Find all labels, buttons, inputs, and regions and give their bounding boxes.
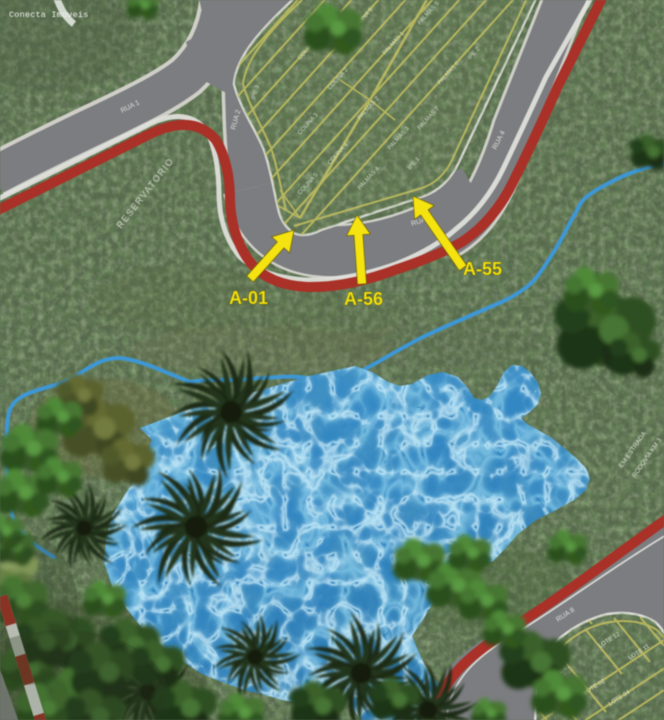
- svg-text:Conecta Imoveis: Conecta Imoveis: [9, 10, 89, 20]
- svg-text:A-01: A-01: [229, 288, 268, 308]
- svg-text:A-55: A-55: [463, 259, 502, 279]
- svg-text:A-56: A-56: [344, 289, 383, 309]
